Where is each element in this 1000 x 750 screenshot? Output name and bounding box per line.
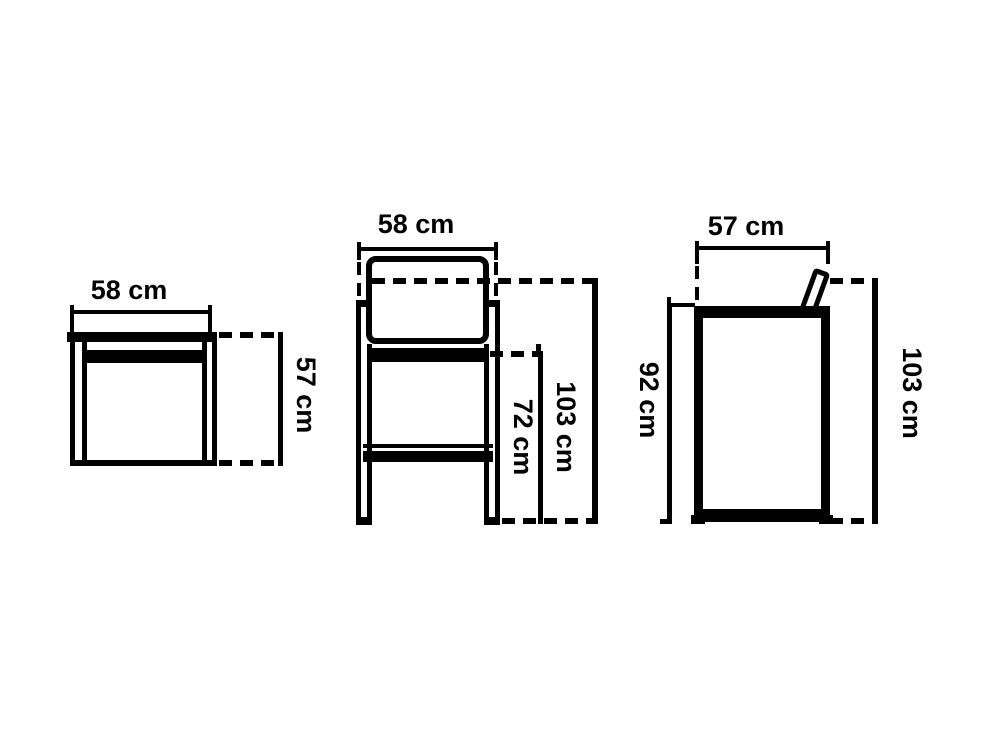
- leg-left-inner: [367, 344, 372, 523]
- height-extension-top: [219, 332, 278, 338]
- seat-height-extension-top: [490, 351, 538, 357]
- leg-right-inner: [202, 342, 207, 464]
- overall-height-extension-bottom: [830, 518, 873, 524]
- depth-dimension-label: 57 cm: [691, 212, 801, 240]
- width-dimension-label: 58 cm: [361, 210, 471, 238]
- width-dimension-tick-left: [357, 242, 361, 260]
- body-left-wall: [694, 306, 703, 524]
- seat-back-height-dimension-label: 92 cm: [635, 355, 663, 445]
- overall-height-extension-top: [372, 278, 597, 284]
- width-dimension-line: [357, 247, 498, 251]
- height-dimension-label: 57 cm: [292, 350, 320, 440]
- overall-height-extension-top: [830, 278, 873, 284]
- width-dimension-tick-right: [494, 242, 498, 260]
- footrest-edge: [363, 444, 493, 448]
- body-top: [694, 306, 830, 318]
- seat-back-height-dimension-line: [667, 303, 672, 524]
- apron: [85, 350, 203, 363]
- bottom-stretcher: [70, 460, 217, 466]
- foot-left: [691, 515, 705, 524]
- leg-right-inner: [484, 344, 489, 523]
- height-dimension-line: [278, 332, 283, 466]
- depth-extension-left: [695, 266, 699, 306]
- depth-dimension-line: [695, 246, 830, 250]
- overall-height-dimension-label: 103 cm: [898, 338, 926, 448]
- seat-height-dimension-line: [538, 351, 543, 524]
- leg-right-outer: [212, 342, 217, 464]
- body-bottom: [697, 509, 828, 522]
- overall-height-dimension-line: [872, 278, 878, 524]
- height-extension-bottom: [219, 460, 278, 466]
- footrest: [363, 451, 493, 462]
- bottom-extension: [502, 518, 597, 524]
- depth-dimension-tick-right: [826, 241, 830, 264]
- leg-right-outer: [495, 303, 500, 523]
- width-dimension-line: [70, 310, 212, 314]
- overall-height-dimension-label: 103 cm: [552, 372, 580, 482]
- dimension-diagram: 58 cm 57 cm 58 cm: [0, 0, 1000, 750]
- foot-right: [484, 517, 500, 525]
- width-dimension-tick-left: [70, 305, 74, 332]
- seat: [367, 348, 486, 362]
- body-right-wall: [821, 306, 830, 524]
- overall-height-dimension-line: [592, 278, 598, 524]
- backrest-frame: [366, 256, 489, 344]
- leg-left-inner: [82, 342, 87, 464]
- leg-left-outer: [70, 342, 75, 464]
- width-dimension-tick-right: [208, 305, 212, 332]
- width-dimension-label: 58 cm: [74, 276, 184, 304]
- seat-height-dimension-label: 72 cm: [509, 392, 537, 482]
- seat-back-height-foot-tick: [660, 519, 672, 524]
- foot-left: [356, 517, 372, 525]
- width-extension-left: [357, 262, 361, 302]
- leg-left-outer: [356, 303, 361, 523]
- depth-dimension-tick-left: [695, 241, 699, 264]
- tabletop: [67, 332, 217, 342]
